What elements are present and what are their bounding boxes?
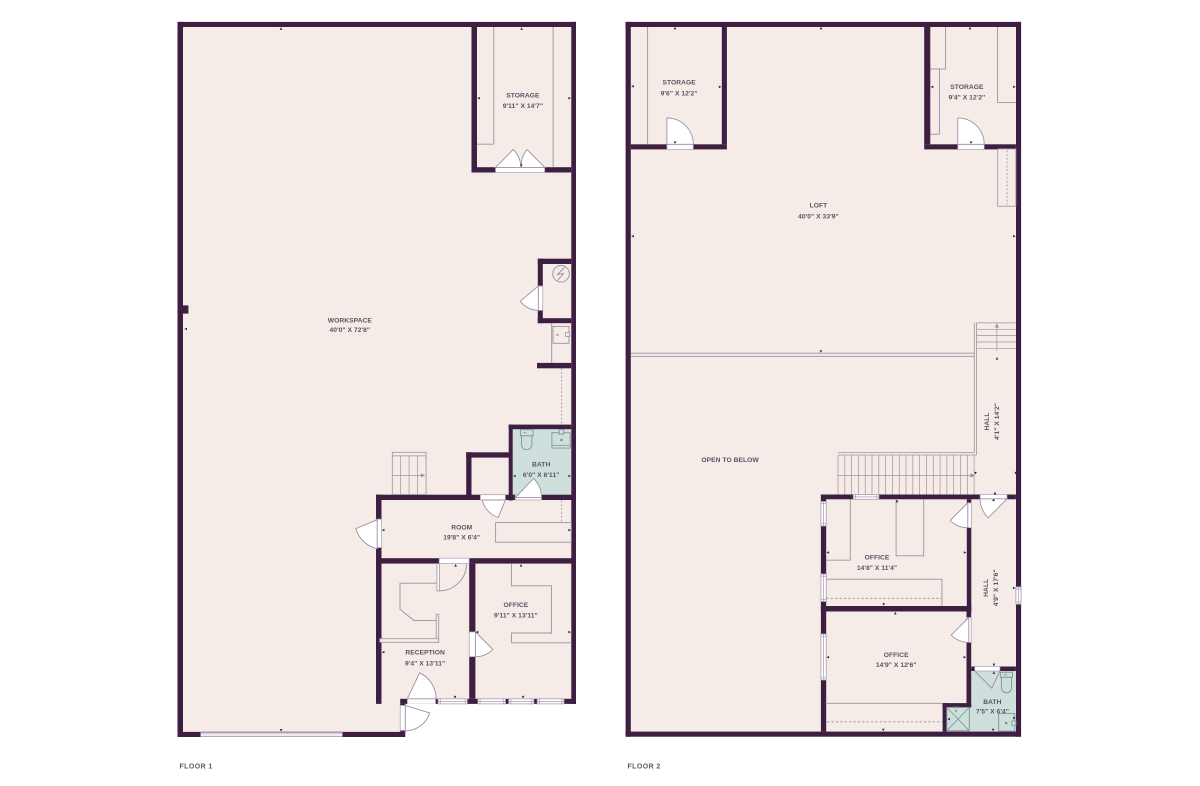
svg-text:40'0" X 33'9": 40'0" X 33'9" (798, 213, 839, 220)
svg-text:7'5" X 6'4": 7'5" X 6'4" (976, 709, 1009, 716)
svg-text:BATH: BATH (532, 462, 550, 469)
svg-text:LOFT: LOFT (810, 203, 829, 210)
svg-text:19'8" X 6'4": 19'8" X 6'4" (443, 534, 480, 541)
svg-text:OPEN TO BELOW: OPEN TO BELOW (701, 457, 759, 464)
svg-text:OFFICE: OFFICE (884, 652, 909, 659)
svg-text:OFFICE: OFFICE (503, 602, 528, 609)
svg-text:14'9" X 12'6": 14'9" X 12'6" (876, 662, 917, 669)
svg-text:WORKSPACE: WORKSPACE (328, 317, 373, 324)
svg-text:BATH: BATH (983, 699, 1001, 706)
svg-text:STORAGE: STORAGE (662, 80, 696, 87)
svg-text:9'4" X 13'11": 9'4" X 13'11" (405, 660, 445, 667)
svg-text:STORAGE: STORAGE (950, 84, 984, 91)
svg-text:4'9" X 17'6": 4'9" X 17'6" (993, 569, 1000, 606)
svg-text:9'4" X 12'2": 9'4" X 12'2" (948, 95, 985, 102)
svg-text:9'6" X 12'2": 9'6" X 12'2" (661, 91, 698, 98)
svg-text:9'11" X 13'11": 9'11" X 13'11" (494, 613, 538, 620)
svg-text:40'0" X 72'8": 40'0" X 72'8" (329, 327, 370, 334)
svg-text:RECEPTION: RECEPTION (405, 650, 445, 657)
svg-text:OFFICE: OFFICE (865, 555, 890, 562)
svg-text:FLOOR 1: FLOOR 1 (180, 764, 213, 771)
svg-text:4'1" X 14'2": 4'1" X 14'2" (994, 403, 1001, 440)
svg-text:ROOM: ROOM (451, 525, 472, 532)
svg-text:HALL: HALL (983, 579, 990, 597)
svg-text:9'11" X 14'7": 9'11" X 14'7" (503, 103, 543, 110)
svg-text:6'0" X 6'11": 6'0" X 6'11" (523, 472, 560, 479)
svg-text:STORAGE: STORAGE (506, 93, 540, 100)
svg-text:HALL: HALL (984, 412, 991, 430)
svg-text:FLOOR 2: FLOOR 2 (628, 764, 661, 771)
svg-text:14'8" X 11'4": 14'8" X 11'4" (857, 565, 897, 572)
